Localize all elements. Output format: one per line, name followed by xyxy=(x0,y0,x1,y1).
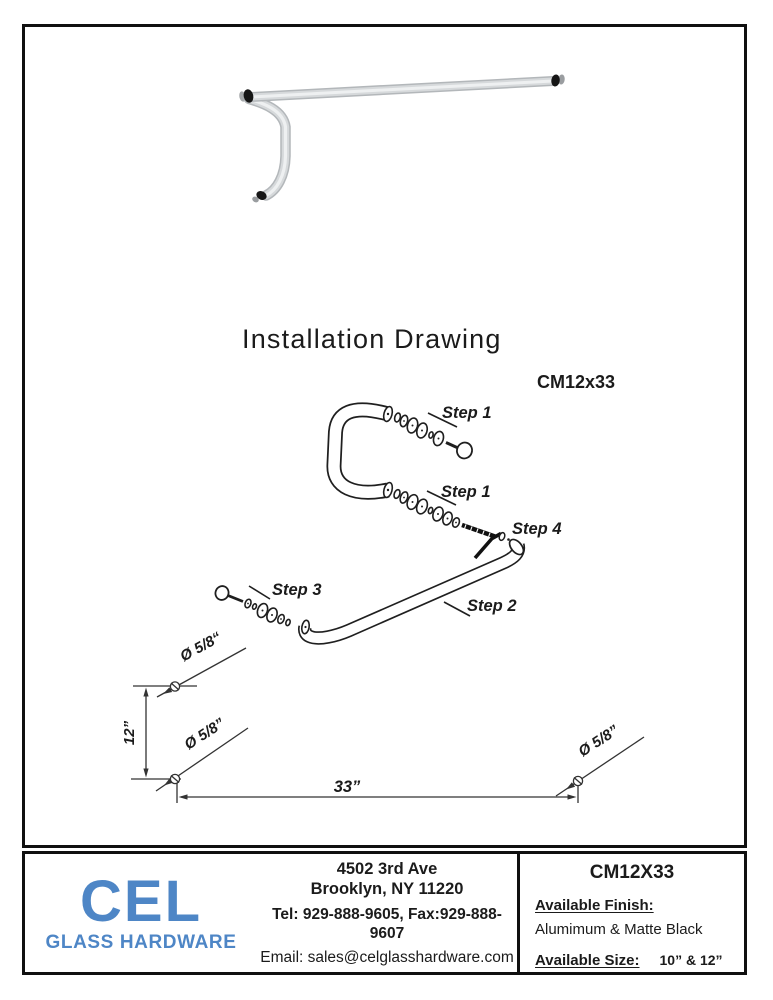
dimension-12: 12” xyxy=(121,688,149,778)
installation-drawing-page: Step 1 Step 1 xyxy=(0,0,773,1000)
step2-label: Step 2 xyxy=(467,597,517,615)
dia-bottom-left-label: Ø 5/8” xyxy=(181,715,228,754)
callout-dia-right: Ø 5/8” xyxy=(556,722,644,796)
arrow-right-icon xyxy=(568,794,577,799)
diagram-model-label: CM12x33 xyxy=(537,372,615,393)
address-line-1: 4502 3rd Ave xyxy=(257,859,517,880)
arrow-up-icon xyxy=(143,688,148,697)
product-photo xyxy=(238,74,565,204)
dimension-33: 33” xyxy=(179,778,577,800)
dia-right-label: Ø 5/8” xyxy=(575,722,622,761)
dimension-drawing: 12” 33” Ø 5/8“ Ø 5/8” xyxy=(121,629,644,803)
arrow-down-icon xyxy=(143,769,148,778)
diagram-pull-handle xyxy=(334,406,394,499)
hole-marker-right xyxy=(573,776,582,785)
step3-label: Step 3 xyxy=(272,581,322,599)
hole-marker-bottom-left xyxy=(170,774,179,783)
company-address: 4502 3rd Ave Brooklyn, NY 11220 Tel: 929… xyxy=(257,859,517,967)
dia-top-left-label: Ø 5/8“ xyxy=(177,629,224,666)
dim-12-label: 12” xyxy=(121,720,138,745)
footer-product-cell: CM12X33 Available Finish: Alumimum & Mat… xyxy=(520,854,744,972)
exploded-diagram: Step 1 Step 1 xyxy=(213,404,561,638)
available-size-value: 10” & 12” xyxy=(660,952,723,968)
logo-subtext: GLASS HARDWARE xyxy=(25,933,257,952)
footer: CEL GLASS HARDWARE 4502 3rd Ave Brooklyn… xyxy=(22,851,747,975)
address-line-2: Brooklyn, NY 11220 xyxy=(257,879,517,900)
hole-marker-top-left xyxy=(170,682,179,691)
step1-bottom-label: Step 1 xyxy=(441,483,491,501)
dim-33-label: 33” xyxy=(334,778,361,796)
set-screw xyxy=(462,524,495,536)
photo-towel-bar xyxy=(251,81,553,97)
arrow-left-icon xyxy=(179,794,188,799)
footer-company-cell: CEL GLASS HARDWARE 4502 3rd Ave Brooklyn… xyxy=(25,854,520,972)
company-logo: CEL GLASS HARDWARE xyxy=(25,874,257,951)
available-size-label: Available Size: xyxy=(535,952,640,969)
drawing-artwork: Step 1 Step 1 xyxy=(0,0,773,1000)
available-finish-label: Available Finish: xyxy=(535,897,654,914)
diagram-towel-bar xyxy=(301,537,526,638)
page-title: Installation Drawing xyxy=(242,324,502,355)
step1-top-label: Step 1 xyxy=(442,404,492,422)
email-line: Email: sales@celglasshardware.com xyxy=(257,948,517,967)
logo-text: CEL xyxy=(25,874,257,929)
phone-fax-line: Tel: 929-888-9605, Fax:929-888-9607 xyxy=(257,905,517,944)
step4-label: Step 4 xyxy=(512,520,562,538)
photo-pull-handle xyxy=(249,99,286,196)
bolt-top xyxy=(446,441,474,461)
step4-washers xyxy=(498,532,510,555)
allen-key-icon xyxy=(475,534,501,559)
available-finish-value: Alumimum & Matte Black xyxy=(535,921,729,938)
step3-leader-line xyxy=(249,586,270,599)
product-model: CM12X33 xyxy=(535,862,729,884)
